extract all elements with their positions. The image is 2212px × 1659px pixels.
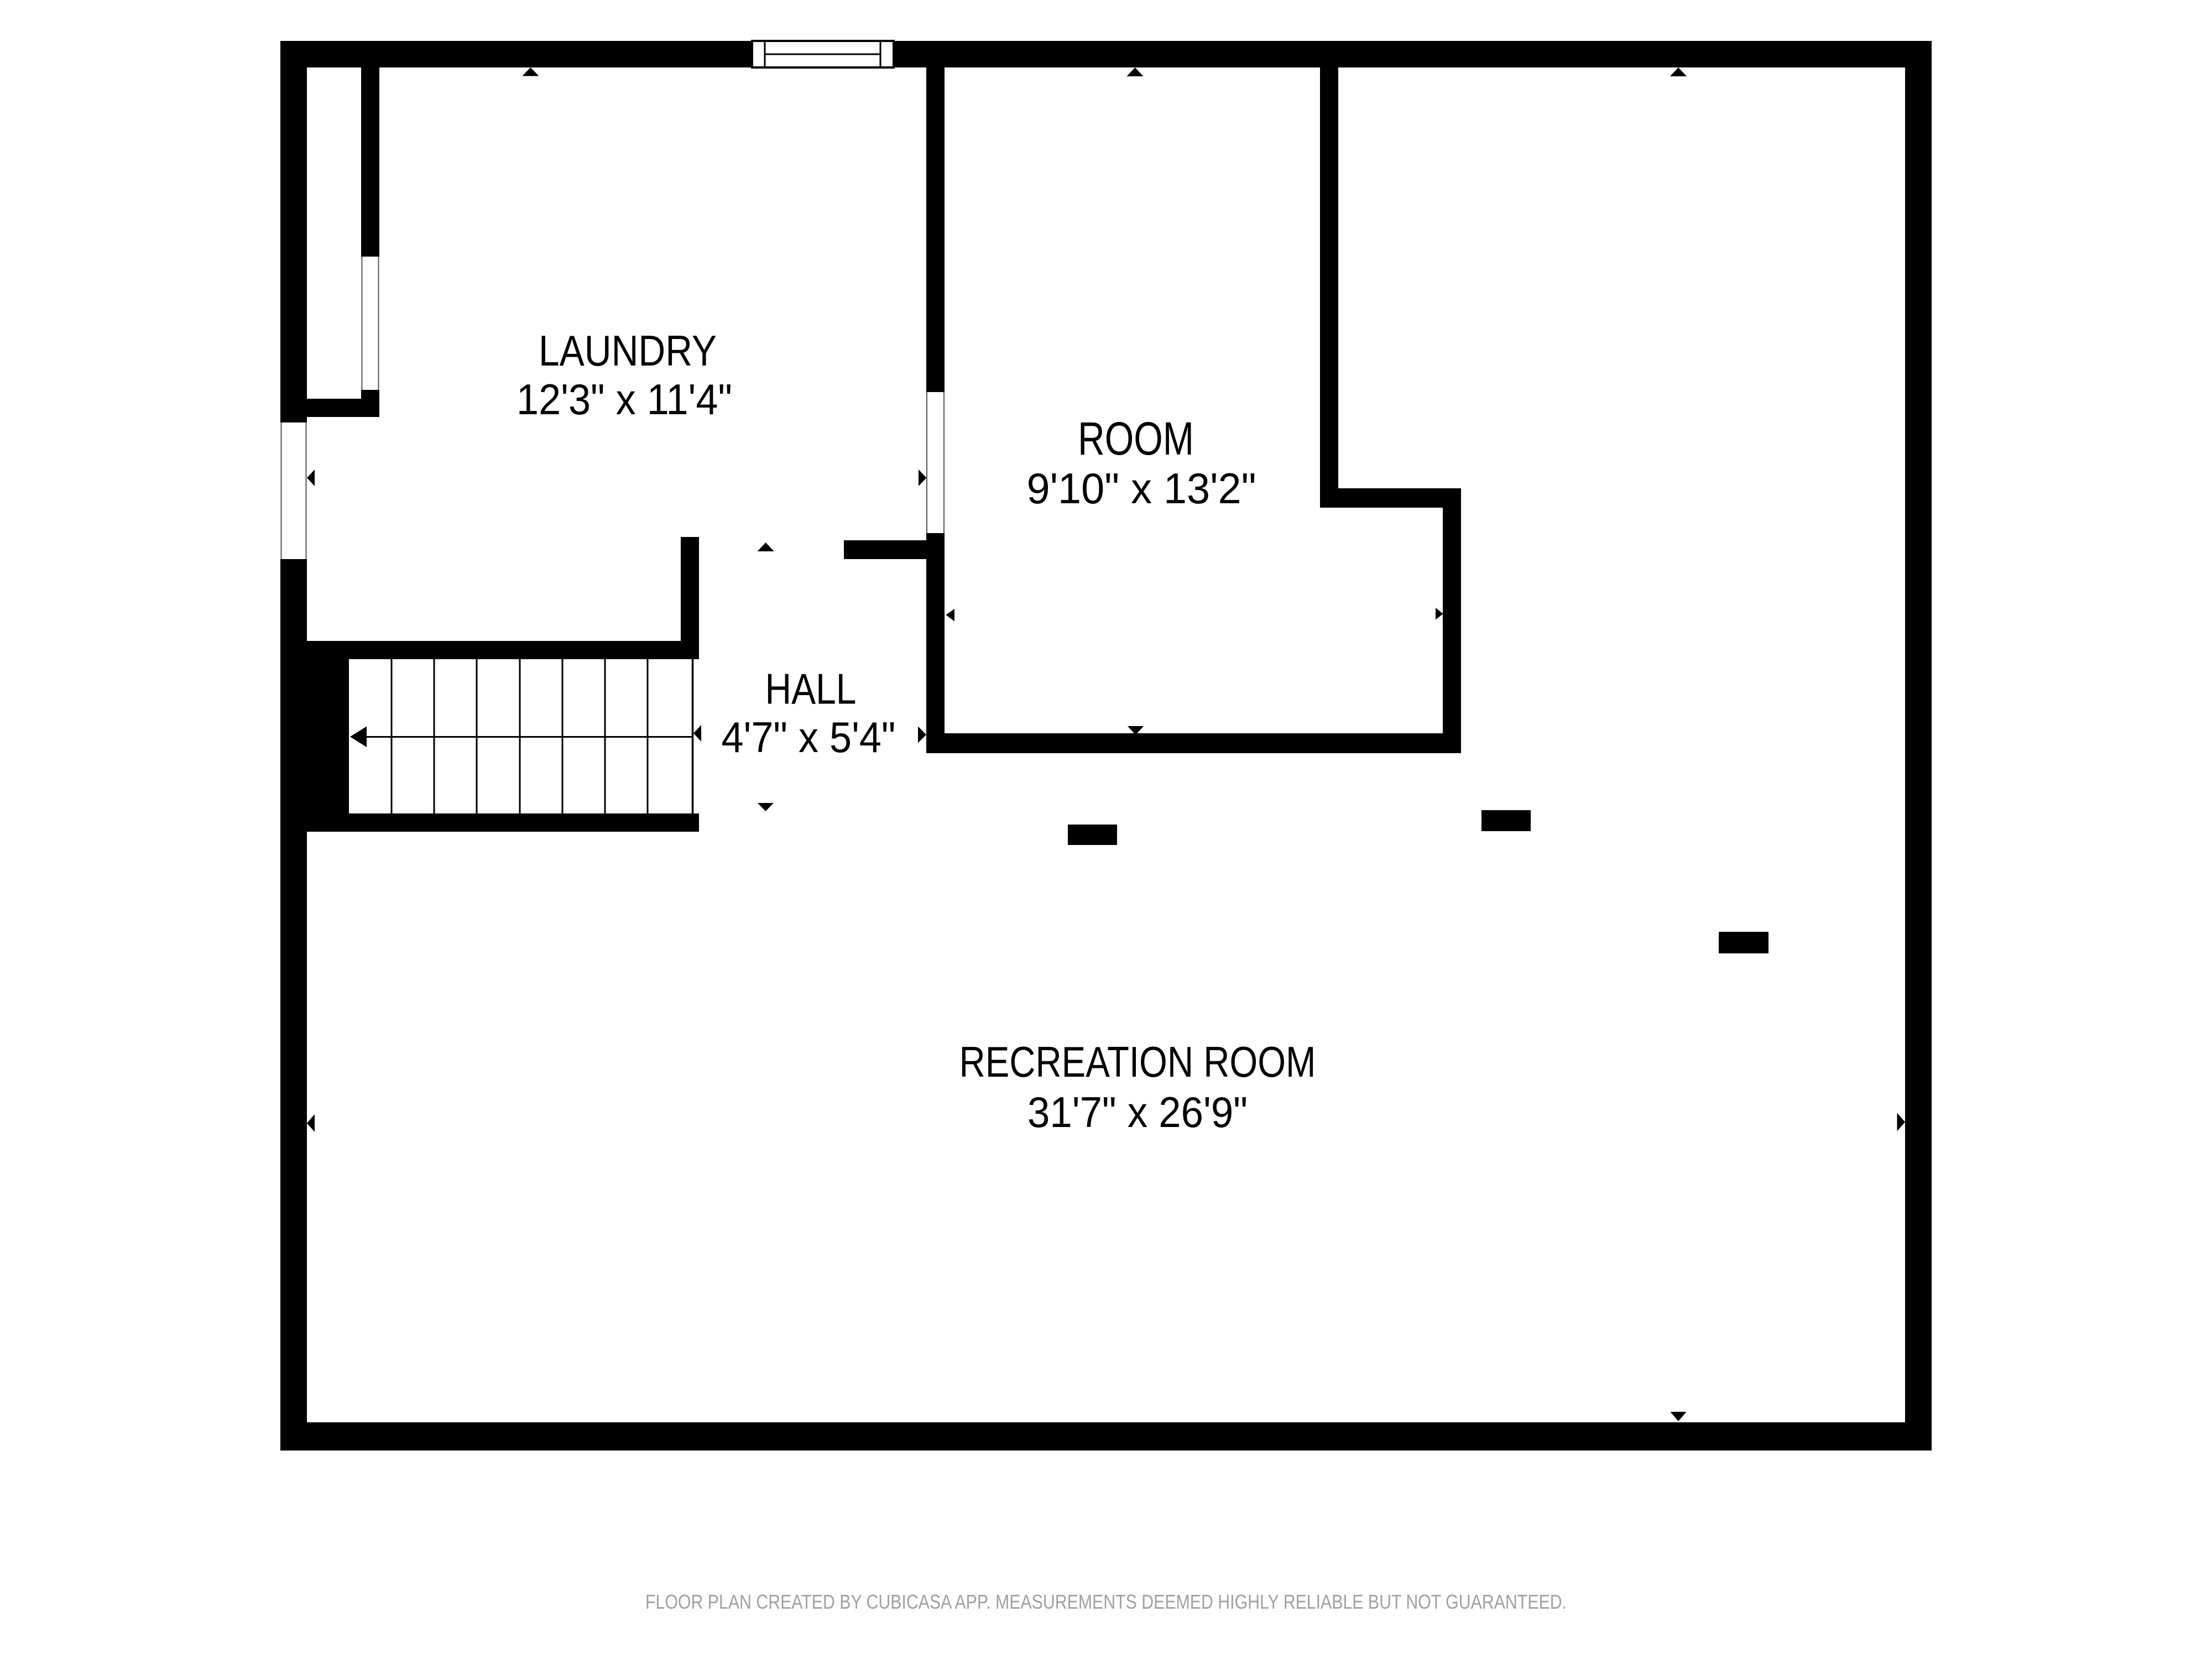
svg-text:31'7" x 26'9": 31'7" x 26'9" [1027, 1088, 1248, 1136]
svg-text:12'3" x 11'4": 12'3" x 11'4" [517, 375, 732, 424]
svg-text:FLOOR PLAN CREATED BY CUBICASA: FLOOR PLAN CREATED BY CUBICASA APP. MEAS… [645, 1590, 1567, 1613]
svg-text:4'7" x 5'4": 4'7" x 5'4" [722, 713, 896, 761]
svg-text:9'10" x 13'2": 9'10" x 13'2" [1027, 464, 1256, 513]
svg-text:LAUNDRY: LAUNDRY [539, 326, 717, 375]
svg-text:RECREATION ROOM: RECREATION ROOM [959, 1037, 1316, 1086]
svg-text:HALL: HALL [765, 665, 857, 713]
svg-text:ROOM: ROOM [1078, 413, 1194, 465]
